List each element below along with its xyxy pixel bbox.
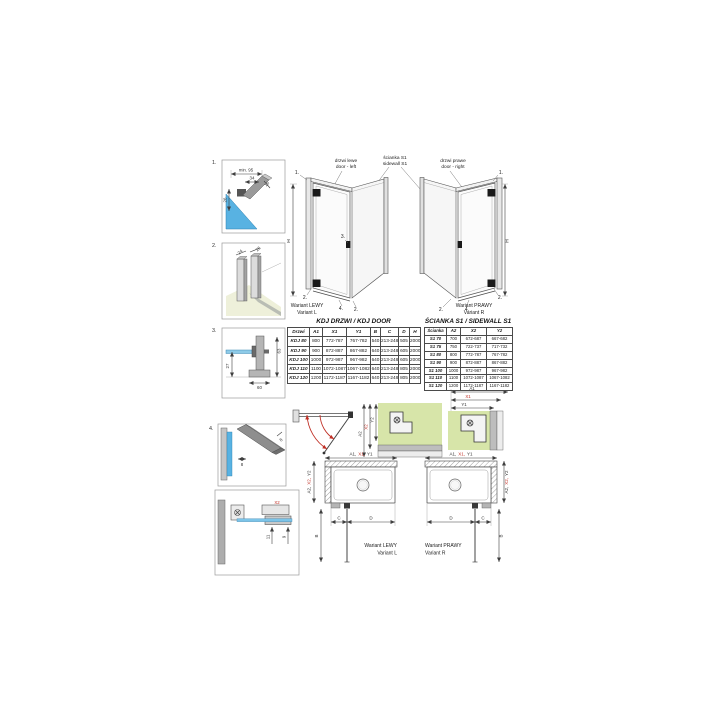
cell: 1067-1082: [487, 375, 513, 383]
iso-view-left: H 1. 2. 3. 4. 2. Wariant LEWY Variant L: [286, 170, 388, 316]
cell: 872-887: [323, 346, 347, 355]
cell: 772-787: [323, 337, 347, 346]
dim-c: C: [481, 516, 485, 521]
plan-variant-left-pl: Wariant LEWY: [364, 543, 397, 549]
table-header-row: ŚciankaA2X2Y2: [425, 328, 513, 336]
dim-11: 11: [266, 534, 271, 539]
cell: 900: [447, 359, 461, 367]
door-swing-diagram: [293, 410, 353, 454]
col-header: Ścianka: [425, 328, 447, 336]
cell: 640: [371, 355, 381, 364]
cell: 972-987: [461, 367, 487, 375]
cell: 1067-1082: [347, 365, 371, 374]
detail-box-1: 1. min. 95 34 16 26: [212, 160, 285, 233]
cell: 1167-1182: [347, 374, 371, 383]
wall-profile: [221, 428, 227, 480]
cell: 800: [447, 351, 461, 359]
detail-1-number: 1.: [212, 160, 217, 166]
dim-y2: Y2: [370, 417, 375, 423]
plan-variant-right-pl: Wariant PRAWY: [425, 543, 462, 549]
technical-drawing-page: { "colors": { "accent_red": "#c03026", "…: [0, 0, 720, 720]
cell: 213-248: [381, 374, 399, 383]
cell: 1200: [310, 374, 323, 383]
row-header: S1 70: [425, 335, 447, 343]
callout-4: 4.: [339, 306, 343, 312]
cell: 872-887: [461, 359, 487, 367]
cell: 640: [371, 365, 381, 374]
row-header: S1 80: [425, 351, 447, 359]
glass-panel: [227, 432, 232, 476]
col-header: Y2: [487, 328, 513, 336]
detail-box-2: 2. 24 26: [212, 243, 285, 319]
dim-b: B: [499, 534, 504, 537]
table-row: S1 12012001172-11871167-1182: [425, 383, 513, 391]
detail-4-number: 4.: [209, 426, 214, 432]
col-header: D: [399, 328, 410, 337]
row-header: S1 100: [425, 367, 447, 375]
row-header: KDJ 120: [288, 374, 310, 383]
cell: 2000: [410, 346, 421, 355]
dim-h-left: H: [286, 239, 292, 243]
label-sidewall-en: sidewall S1: [383, 161, 408, 167]
sidewall-table: ŚCIANKA S1 / SIDEWALL S1 ŚciankaA2X2Y2S1…: [424, 318, 512, 391]
sidewall-plan: [325, 461, 397, 467]
col-header: Y1: [347, 328, 371, 337]
callout-2: 2.: [498, 295, 502, 301]
table-row: KDJ 90900872-887867-882640213-2486052000: [288, 346, 421, 355]
variant-right-en: Variant R: [464, 310, 485, 316]
dim-a2: A2: [358, 431, 363, 437]
hinge-bottom: [313, 280, 321, 288]
dim-y1: Y1: [461, 402, 467, 407]
tray-edge: [490, 411, 497, 450]
cell: 1172-1187: [323, 374, 347, 383]
cell: 967-982: [487, 367, 513, 375]
callout-2b: 2.: [354, 307, 358, 313]
cell: 1100: [310, 365, 323, 374]
cell: 772-787: [461, 351, 487, 359]
table-row: S1 75750722-737717-732: [425, 343, 513, 351]
glass-panel: [226, 350, 252, 354]
tray-skirt: [497, 411, 503, 450]
kdj-door-table: KDJ DRZWI / KDJ DOOR DrzwiA1X1Y1BCDHKDJ …: [287, 318, 420, 384]
hinge-bottom: [488, 280, 496, 288]
cell: 605: [399, 346, 410, 355]
wall-profile-front: [237, 257, 247, 302]
detail-box-4: 4. 8 8: [209, 424, 286, 486]
wall-plan: [325, 467, 331, 503]
callout-1: 1.: [295, 170, 299, 176]
hinge-plan: [344, 503, 350, 509]
cell: 2000: [410, 365, 421, 374]
dim-c: C: [337, 516, 341, 521]
plan-side-dim-label: A2,X2,Y2: [504, 470, 509, 494]
dim-h-right: H: [505, 239, 511, 243]
plan-variant-right-en: Variant R: [425, 551, 446, 557]
detail-3-number: 3.: [212, 328, 217, 334]
cell: 967-982: [347, 355, 371, 364]
cell: 700: [447, 335, 461, 343]
cell: 900: [310, 346, 323, 355]
cell: 1000: [447, 367, 461, 375]
cell: 1200: [447, 383, 461, 391]
dim-26: 26: [223, 197, 228, 202]
door-table-title: KDJ DRZWI / KDJ DOOR: [287, 318, 420, 325]
cell: 1072-1087: [323, 365, 347, 374]
detail-2-number: 2.: [212, 243, 217, 249]
cell: 1100: [447, 375, 461, 383]
corner-detail-door: A1 X1 Y1: [448, 386, 508, 450]
sidewall-edge-profile: [384, 178, 388, 274]
cell: 867-882: [487, 359, 513, 367]
plan-top-dim-label: A1,X1,Y1: [449, 452, 473, 457]
col-header: A2: [447, 328, 461, 336]
table-row: S1 11011001072-10871067-1082: [425, 375, 513, 383]
wall-profile: [293, 410, 299, 422]
plan-top-dim-label: A1,X1,Y1: [349, 452, 373, 457]
col-header: Drzwi: [288, 328, 310, 337]
cell: 800: [310, 337, 323, 346]
cell: 667-682: [487, 335, 513, 343]
wall-mount-profile: [497, 178, 502, 289]
cell: 640: [371, 374, 381, 383]
row-header: KDJ 110: [288, 365, 310, 374]
detail-box-3: 3. 63 27 60: [212, 328, 285, 398]
dim-60: 60: [257, 385, 262, 390]
plan-variant-left-en: Variant L: [377, 551, 397, 557]
dim-b: B: [314, 534, 319, 537]
cell: 750: [447, 343, 461, 351]
door-handle: [346, 241, 351, 248]
dim-27: 27: [225, 363, 230, 368]
cell: 1167-1182: [487, 383, 513, 391]
wall-mount-profile: [306, 178, 311, 289]
upper-profile: [262, 505, 289, 515]
cell: 672-687: [461, 335, 487, 343]
table-row: KDJ 80800772-787767-782540213-2485052000: [288, 337, 421, 346]
dim-63: 63: [277, 348, 282, 353]
support-post: [256, 336, 264, 370]
plan-view-right: A1,X1,Y1 B A2,X2,Y2 D C Wariant PRAWY Va…: [425, 452, 509, 563]
swing-arc-outer: [307, 415, 327, 449]
cell: 805: [399, 365, 410, 374]
screw: [235, 510, 241, 516]
cell: 605: [399, 355, 410, 364]
cell: 213-248: [381, 337, 399, 346]
plan-side-dim-label: A2,X2,Y2: [307, 470, 312, 494]
table-row: S1 80800772-787767-782: [425, 351, 513, 359]
cell: 1000: [310, 355, 323, 364]
screw: [394, 417, 400, 423]
cell: 213-248: [381, 365, 399, 374]
row-header: S1 75: [425, 343, 447, 351]
row-header: KDJ 100: [288, 355, 310, 364]
label-door-right-pl: drzwi prawe: [440, 158, 466, 164]
iso-view-right: H 1. 2. 4. 2. Wariant PRAWY Variant R: [420, 170, 511, 316]
plan-view-left: A1,X1,Y1 B A2,X2,Y2 C D Wariant LEWY Var…: [307, 452, 398, 563]
hinge-top: [488, 189, 496, 197]
cell: 972-987: [323, 355, 347, 364]
glass-panel: [237, 519, 292, 522]
sidewall-table-grid: ŚciankaA2X2Y2S1 70700672-687667-682S1 75…: [424, 327, 513, 391]
cell: 540: [371, 337, 381, 346]
hinge-plan: [472, 503, 478, 509]
tray-edge: [378, 445, 442, 451]
sidewall-glass: [424, 179, 456, 298]
wall-profile-back: [251, 254, 261, 299]
dim-34: 34: [250, 176, 255, 181]
col-header: A1: [310, 328, 323, 337]
cell: 213-248: [381, 355, 399, 364]
dim-x2: X2: [364, 424, 369, 430]
callout-2: 2.: [303, 295, 307, 301]
cell: 767-782: [487, 351, 513, 359]
cell: 505: [399, 337, 410, 346]
row-header: KDJ 80: [288, 337, 310, 346]
swing-arc-inner: [320, 415, 334, 439]
callout-3: 3.: [341, 234, 345, 240]
col-header: X1: [323, 328, 347, 337]
variant-left-en: Variant L: [297, 310, 317, 316]
door-table-grid: DrzwiA1X1Y1BCDHKDJ 80800772-787767-78254…: [287, 327, 421, 384]
cell: 722-737: [461, 343, 487, 351]
col-header: C: [381, 328, 399, 337]
sidewall-table-title: ŚCIANKA S1 / SIDEWALL S1: [424, 318, 512, 325]
screw: [467, 420, 473, 426]
corner-detail-sidewall: A2 X2 Y2: [358, 403, 443, 457]
table-row: S1 90900872-887867-882: [425, 359, 513, 367]
dim-d: D: [369, 516, 373, 521]
bottom-profile: [482, 503, 491, 508]
col-header: X2: [461, 328, 487, 336]
door-handle: [458, 241, 463, 248]
dim-x1: X1: [465, 394, 471, 399]
cell: 1172-1187: [461, 383, 487, 391]
tray-skirt: [378, 451, 442, 457]
table-row: S1 1001000972-987967-982: [425, 367, 513, 375]
cell: 1072-1087: [461, 375, 487, 383]
row-header: S1 90: [425, 359, 447, 367]
row-header: KDJ 90: [288, 346, 310, 355]
cell: 805: [399, 374, 410, 383]
label-door-left-pl: drzwi lewe: [335, 158, 358, 164]
label-door-left-en: door - left: [336, 164, 357, 170]
table-row: KDJ 12012001172-11871167-1182640213-2488…: [288, 374, 421, 383]
wall-plan: [491, 467, 497, 503]
cell: 717-732: [487, 343, 513, 351]
dim-d: D: [449, 516, 453, 521]
table-row: S1 70700672-687667-682: [425, 335, 513, 343]
table-row: KDJ 1001000972-987967-982640213-24860520…: [288, 355, 421, 364]
wall-section: [218, 500, 225, 564]
hinge-top: [313, 189, 321, 197]
cell: 2000: [410, 374, 421, 383]
cell: 2000: [410, 355, 421, 364]
bottom-profile: [331, 503, 340, 508]
sidewall-plan: [425, 461, 497, 467]
detail-box-5: X2 11 9: [215, 490, 299, 575]
cell: 213-248: [381, 346, 399, 355]
support-foot: [249, 370, 270, 377]
label-door-right-en: door - right: [441, 164, 465, 170]
variant-right-pl: Wariant PRAWY: [456, 303, 493, 309]
cell: 767-782: [347, 337, 371, 346]
col-header: H: [410, 328, 421, 337]
cell: 867-882: [347, 346, 371, 355]
callout-1: 1.: [499, 170, 503, 176]
table-row: KDJ 11011001072-10871067-1082640213-2488…: [288, 365, 421, 374]
row-header: S1 120: [425, 383, 447, 391]
cell: 2000: [410, 337, 421, 346]
label-sidewall-pl: ścianka S1: [383, 155, 407, 161]
col-header: B: [371, 328, 381, 337]
dim-x2: X2: [274, 500, 280, 505]
table-header-row: DrzwiA1X1Y1BCDH: [288, 328, 421, 337]
variant-left-pl: Wariant LEWY: [291, 303, 324, 309]
callout-2b: 2.: [439, 307, 443, 313]
dim-min-95: min. 95: [239, 168, 254, 173]
sidewall-edge-profile: [420, 178, 424, 274]
cell: 640: [371, 346, 381, 355]
row-header: S1 110: [425, 375, 447, 383]
sidewall-glass: [352, 179, 384, 298]
